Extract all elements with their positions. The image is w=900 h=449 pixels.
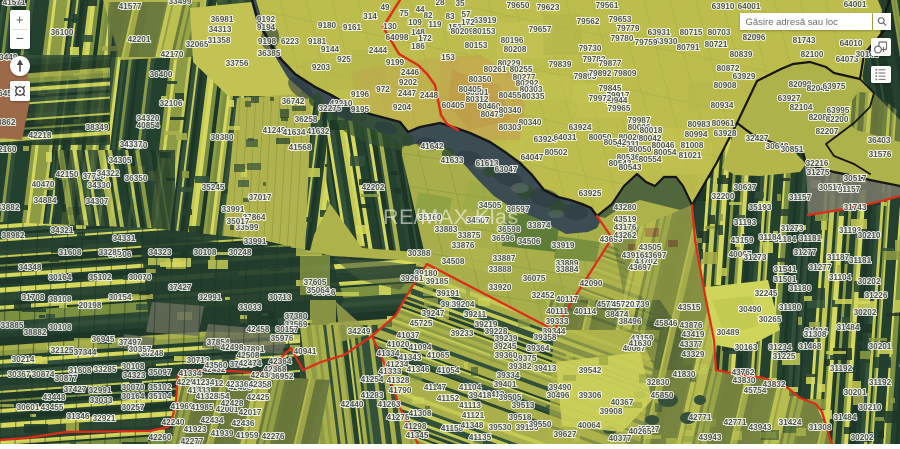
svg-text:30201: 30201	[844, 388, 867, 397]
svg-text:64001: 64001	[738, 2, 761, 11]
svg-text:30164: 30164	[49, 273, 72, 282]
svg-text:153: 153	[441, 53, 455, 62]
svg-text:33919: 33919	[552, 241, 575, 250]
svg-text:80908: 80908	[714, 81, 737, 90]
svg-text:80502: 80502	[545, 148, 568, 157]
svg-text:43455: 43455	[41, 403, 64, 412]
svg-text:43448: 43448	[43, 393, 66, 402]
svg-text:40111: 40111	[546, 307, 568, 316]
svg-text:36981: 36981	[211, 15, 234, 24]
svg-text:34884: 34884	[34, 196, 57, 205]
svg-text:42458: 42458	[247, 325, 270, 334]
svg-text:79650: 79650	[507, 1, 530, 10]
svg-text:80542: 80542	[604, 138, 627, 147]
svg-text:32830: 32830	[647, 378, 670, 387]
svg-text:38380: 38380	[211, 133, 234, 142]
svg-text:36945: 36945	[92, 335, 115, 344]
svg-text:41135: 41135	[469, 433, 492, 442]
svg-text:83: 83	[445, 12, 455, 21]
svg-text:42017: 42017	[239, 408, 262, 417]
svg-text:RE/MAX Klas: RE/MAX Klas	[383, 205, 519, 229]
svg-text:42425: 42425	[247, 393, 270, 402]
svg-text:30201: 30201	[869, 342, 892, 351]
svg-text:41152: 41152	[437, 394, 460, 403]
svg-text:43377: 43377	[680, 340, 703, 349]
svg-text:36403: 36403	[868, 136, 891, 145]
svg-text:41263: 41263	[378, 400, 401, 409]
svg-text:9144: 9144	[321, 45, 340, 54]
svg-text:82207: 82207	[816, 127, 839, 136]
svg-text:31468: 31468	[799, 342, 822, 351]
svg-text:39185: 39185	[426, 277, 449, 286]
svg-text:42474: 42474	[239, 359, 262, 368]
svg-text:9203: 9203	[312, 63, 331, 72]
svg-text:37017: 37017	[249, 193, 272, 202]
svg-text:9204: 9204	[393, 103, 412, 112]
svg-text:30108: 30108	[49, 323, 72, 332]
svg-text:41283: 41283	[361, 391, 384, 400]
svg-text:60405: 60405	[442, 101, 465, 110]
svg-text:9180: 9180	[318, 21, 337, 30]
svg-text:80261: 80261	[484, 65, 507, 74]
svg-text:39530: 39530	[489, 423, 512, 432]
svg-text:43943: 43943	[749, 423, 772, 432]
svg-text:34313: 34313	[209, 25, 232, 34]
svg-text:30265: 30265	[759, 315, 782, 324]
svg-text:35102: 35102	[89, 273, 112, 282]
svg-text:42440: 42440	[341, 400, 364, 409]
svg-text:80839: 80839	[730, 50, 753, 59]
svg-text:39513: 39513	[512, 401, 535, 410]
svg-text:30517: 30517	[844, 174, 867, 183]
svg-text:79839: 79839	[549, 60, 572, 69]
svg-text:41308: 41308	[409, 409, 432, 418]
svg-text:41278: 41278	[387, 413, 410, 422]
svg-text:63975: 63975	[823, 82, 846, 91]
svg-text:30257: 30257	[122, 403, 145, 412]
svg-text:40265: 40265	[629, 427, 652, 436]
svg-text:63910: 63910	[712, 2, 735, 11]
svg-text:31180: 31180	[779, 303, 802, 312]
svg-text:81743: 81743	[793, 36, 816, 45]
svg-text:79965: 79965	[608, 104, 631, 113]
svg-text:38108: 38108	[49, 295, 72, 304]
svg-text:2446: 2446	[401, 68, 420, 77]
svg-text:43159: 43159	[731, 236, 754, 245]
svg-text:39333: 39333	[546, 317, 569, 326]
svg-text:39211: 39211	[464, 310, 487, 319]
svg-text:31743: 31743	[844, 203, 867, 212]
svg-text:33991: 33991	[222, 205, 245, 214]
svg-text:35102: 35102	[149, 383, 172, 392]
svg-text:41568: 41568	[289, 143, 312, 152]
svg-text:30163: 30163	[735, 343, 758, 352]
svg-text:31358: 31358	[208, 36, 231, 45]
svg-text:20198: 20198	[79, 301, 102, 310]
svg-text:31484: 31484	[837, 323, 860, 332]
svg-text:30154: 30154	[109, 293, 132, 302]
svg-text:63047: 63047	[495, 165, 518, 174]
svg-text:42436: 42436	[232, 419, 255, 428]
svg-text:32200: 32200	[712, 192, 735, 201]
svg-text:80554: 80554	[639, 155, 662, 164]
svg-text:33920: 33920	[489, 283, 512, 292]
svg-text:31187: 31187	[827, 253, 850, 262]
svg-text:31608: 31608	[59, 248, 82, 257]
svg-text:39204: 39204	[452, 300, 475, 309]
svg-text:80405: 80405	[459, 85, 482, 94]
svg-text:63927: 63927	[778, 94, 801, 103]
svg-text:30108: 30108	[122, 362, 145, 371]
svg-text:79779: 79779	[617, 24, 640, 33]
svg-text:31273: 31273	[744, 253, 767, 262]
svg-text:35976: 35976	[271, 334, 294, 343]
svg-text:63925: 63925	[579, 189, 602, 198]
svg-text:31277: 31277	[809, 263, 832, 272]
svg-text:41939: 41939	[211, 429, 234, 438]
svg-text:80196: 80196	[501, 36, 524, 45]
svg-text:39413: 39413	[534, 364, 557, 373]
svg-text:41020: 41020	[387, 340, 410, 349]
svg-text:40941: 40941	[294, 347, 317, 356]
svg-text:186: 186	[411, 42, 425, 51]
svg-text:30496: 30496	[547, 391, 570, 400]
svg-text:30248: 30248	[229, 248, 252, 257]
svg-text:80208: 80208	[504, 45, 527, 54]
svg-text:79877: 79877	[599, 59, 622, 68]
svg-text:36952: 36952	[271, 372, 294, 381]
svg-text:43560: 43560	[205, 361, 228, 370]
svg-text:30070: 30070	[122, 383, 145, 392]
svg-text:40367: 40367	[611, 398, 634, 407]
svg-text:43419: 43419	[682, 330, 705, 339]
svg-text:33499: 33499	[169, 0, 192, 6]
svg-text:41633: 41633	[441, 156, 464, 165]
svg-text:41334: 41334	[377, 349, 400, 358]
svg-text:64010: 64010	[840, 39, 863, 48]
svg-text:6223: 6223	[281, 37, 300, 46]
svg-text:82104: 82104	[790, 103, 813, 112]
svg-text:30489: 30489	[717, 328, 740, 337]
svg-text:42771: 42771	[724, 418, 747, 427]
svg-text:44: 44	[415, 5, 425, 14]
svg-text:31708: 31708	[22, 293, 45, 302]
svg-text:30877: 30877	[55, 374, 78, 383]
svg-text:33033: 33033	[90, 396, 113, 405]
svg-text:79623: 79623	[537, 3, 560, 12]
svg-text:109: 109	[408, 18, 422, 27]
svg-text:30367: 30367	[8, 370, 31, 379]
svg-text:79780: 79780	[611, 34, 634, 43]
svg-text:79809: 79809	[614, 69, 637, 78]
svg-text:34249: 34249	[348, 327, 371, 336]
svg-text:41121: 41121	[462, 411, 485, 420]
svg-text:30637: 30637	[734, 183, 757, 192]
svg-text:41348: 41348	[461, 421, 484, 430]
svg-text:28: 28	[435, 0, 445, 7]
svg-text:31484: 31484	[834, 413, 857, 422]
svg-text:31225: 31225	[773, 352, 796, 361]
svg-text:31181: 31181	[799, 234, 822, 243]
svg-text:79892: 79892	[589, 69, 612, 78]
svg-text:43280: 43280	[614, 203, 637, 212]
svg-text:32216: 32216	[806, 159, 829, 168]
svg-text:36742: 36742	[282, 97, 305, 106]
svg-text:31226: 31226	[865, 291, 888, 300]
svg-text:34323: 34323	[123, 371, 146, 380]
svg-text:39233: 39233	[451, 329, 474, 338]
svg-text:32991: 32991	[199, 293, 222, 302]
svg-text:42170: 42170	[161, 50, 184, 59]
svg-text:80934: 80934	[711, 101, 734, 110]
svg-text:41985: 41985	[191, 403, 214, 412]
svg-text:34323: 34323	[149, 248, 172, 257]
svg-text:41632: 41632	[307, 127, 330, 136]
svg-text:42428: 42428	[221, 399, 244, 408]
svg-text:43876: 43876	[680, 321, 703, 330]
svg-text:41923: 41923	[184, 425, 207, 434]
svg-text:42218: 42218	[29, 131, 52, 140]
svg-text:30108: 30108	[194, 248, 217, 257]
svg-text:37344: 37344	[74, 348, 97, 357]
svg-text:80153: 80153	[473, 27, 496, 36]
svg-text:35245: 35245	[202, 183, 225, 192]
svg-text:33882: 33882	[0, 203, 20, 212]
svg-text:30202: 30202	[858, 277, 881, 286]
svg-text:39542: 39542	[579, 366, 602, 375]
svg-text:42160: 42160	[0, 145, 17, 154]
svg-text:80340: 80340	[519, 118, 542, 127]
svg-text:42434: 42434	[201, 416, 224, 425]
svg-text:64047: 64047	[521, 153, 544, 162]
svg-text:81008: 81008	[681, 141, 704, 150]
svg-text:34508: 34508	[442, 257, 465, 266]
svg-text:39358: 39358	[534, 333, 557, 342]
svg-text:30851: 30851	[781, 145, 804, 154]
svg-text:2444: 2444	[369, 46, 388, 55]
svg-text:43515: 43515	[678, 303, 701, 312]
svg-text:30210: 30210	[858, 231, 881, 240]
svg-text:9196: 9196	[351, 90, 370, 99]
svg-text:34337: 34337	[120, 140, 143, 149]
svg-text:41328: 41328	[196, 392, 219, 401]
svg-text:31308: 31308	[809, 423, 832, 432]
svg-text:34331: 34331	[113, 234, 136, 243]
svg-text:30713: 30713	[269, 293, 292, 302]
svg-text:41959: 41959	[236, 431, 259, 440]
svg-text:30210: 30210	[859, 403, 882, 412]
svg-text:42150: 42150	[56, 170, 79, 179]
svg-text:35097: 35097	[149, 368, 172, 377]
svg-text:925: 925	[337, 55, 351, 64]
svg-text:31277: 31277	[794, 248, 817, 257]
svg-text:80340: 80340	[499, 106, 522, 115]
svg-text:80994: 80994	[685, 130, 708, 139]
svg-text:34307: 34307	[86, 197, 109, 206]
svg-text:30202: 30202	[851, 433, 874, 442]
svg-text:42771: 42771	[689, 413, 712, 422]
svg-text:30357: 30357	[129, 345, 152, 354]
svg-text:33888: 33888	[489, 265, 512, 274]
svg-text:34305: 34305	[109, 156, 132, 165]
svg-text:63931: 63931	[648, 28, 671, 37]
svg-text:33756: 33756	[226, 59, 249, 68]
svg-text:33991: 33991	[244, 237, 267, 246]
svg-text:30214: 30214	[12, 355, 35, 364]
svg-text:63919: 63919	[474, 16, 497, 25]
svg-text:40114: 40114	[574, 307, 597, 316]
svg-text:36075: 36075	[523, 274, 546, 283]
svg-text:39418: 39418	[469, 391, 492, 400]
svg-text:38496: 38496	[619, 317, 642, 326]
svg-text:39245: 39245	[494, 342, 517, 351]
svg-text:38982: 38982	[2, 231, 25, 240]
svg-text:41634: 41634	[283, 128, 306, 137]
svg-text:30388: 30388	[408, 249, 431, 258]
svg-text:82100: 82100	[801, 50, 824, 59]
svg-text:43830: 43830	[733, 376, 756, 385]
svg-text:42090: 42090	[580, 279, 603, 288]
svg-text:31234: 31234	[769, 343, 792, 352]
svg-text:9161: 9161	[343, 23, 362, 32]
svg-text:31424: 31424	[779, 418, 802, 427]
svg-text:33285: 33285	[99, 248, 122, 257]
svg-text:33875: 33875	[458, 231, 481, 240]
svg-text:40470: 40470	[32, 180, 55, 189]
svg-text:79562: 79562	[577, 17, 600, 26]
svg-text:9194: 9194	[257, 23, 276, 32]
svg-text:80961: 80961	[712, 119, 735, 128]
svg-text:31501: 31501	[774, 275, 797, 284]
svg-text:34320: 34320	[137, 114, 160, 123]
svg-text:31184: 31184	[759, 233, 782, 242]
svg-text:9195: 9195	[351, 105, 370, 114]
svg-text:40064: 40064	[578, 421, 601, 430]
svg-text:41790: 41790	[389, 386, 412, 395]
svg-text:39247: 39247	[422, 309, 445, 318]
svg-text:35064: 35064	[307, 286, 330, 295]
svg-text:43262: 43262	[614, 231, 637, 240]
svg-text:39364: 39364	[527, 344, 550, 353]
svg-text:80209: 80209	[451, 27, 474, 36]
svg-text:42260: 42260	[149, 433, 172, 442]
svg-text:41065: 41065	[427, 351, 450, 360]
svg-text:80721: 80721	[705, 40, 728, 49]
svg-text:45725: 45725	[410, 319, 433, 328]
svg-text:41328: 41328	[387, 376, 410, 385]
svg-text:38349: 38349	[86, 123, 109, 132]
svg-text:43832: 43832	[763, 380, 786, 389]
svg-text:49: 49	[380, 3, 390, 12]
svg-text:41577: 41577	[119, 2, 142, 11]
svg-text:32106: 32106	[160, 99, 183, 108]
svg-text:38862: 38862	[0, 118, 16, 127]
svg-text:43329: 43329	[682, 350, 705, 359]
svg-text:31541: 31541	[774, 265, 797, 274]
svg-text:41571: 41571	[3, 0, 26, 7]
svg-text:31192: 31192	[830, 364, 853, 373]
svg-text:43943: 43943	[699, 433, 722, 442]
svg-text:42202: 42202	[362, 183, 385, 192]
svg-text:34322: 34322	[97, 169, 120, 178]
svg-text:35104: 35104	[149, 392, 172, 401]
svg-text:33033: 33033	[239, 303, 262, 312]
svg-text:41642: 41642	[421, 142, 444, 151]
svg-text:41054: 41054	[437, 366, 460, 375]
svg-text:31346: 31346	[67, 412, 90, 421]
svg-text:63930: 63930	[655, 37, 678, 46]
svg-text:80791: 80791	[677, 43, 700, 52]
svg-text:39401: 39401	[494, 380, 517, 389]
svg-text:2448: 2448	[420, 91, 439, 100]
svg-text:36596: 36596	[492, 234, 515, 243]
svg-text:79759: 79759	[635, 38, 658, 47]
svg-text:41037: 41037	[397, 331, 420, 340]
svg-text:43697: 43697	[629, 263, 652, 272]
svg-text:80350: 80350	[469, 75, 492, 84]
svg-text:31192: 31192	[869, 378, 892, 387]
svg-text:80715: 80715	[680, 28, 703, 37]
svg-text:80703: 80703	[708, 28, 731, 37]
svg-text:41345: 41345	[406, 431, 429, 440]
svg-text:39261: 39261	[401, 274, 424, 283]
svg-text:9202: 9202	[399, 78, 418, 87]
svg-text:30517: 30517	[819, 183, 842, 192]
svg-text:33874: 33874	[528, 221, 551, 230]
svg-text:37427: 37427	[169, 283, 192, 292]
svg-text:42277: 42277	[181, 437, 204, 444]
svg-text:80153: 80153	[465, 41, 488, 50]
svg-text:79972: 79972	[589, 94, 612, 103]
svg-text:31273: 31273	[781, 224, 804, 233]
svg-text:36258: 36258	[295, 115, 318, 124]
svg-text:82096: 82096	[743, 33, 766, 42]
svg-text:30874: 30874	[32, 370, 55, 379]
svg-text:30164: 30164	[122, 392, 145, 401]
svg-text:80983: 80983	[688, 120, 711, 129]
svg-text:81021: 81021	[679, 151, 702, 160]
svg-text:35017: 35017	[227, 217, 250, 226]
svg-text:41298: 41298	[404, 422, 427, 431]
svg-text:39550: 39550	[529, 420, 552, 429]
svg-text:32065: 32065	[186, 40, 209, 49]
svg-text:31576: 31576	[869, 150, 892, 159]
svg-text:41147: 41147	[424, 383, 447, 392]
svg-text:41630: 41630	[629, 339, 652, 348]
svg-text:33884: 33884	[556, 265, 579, 274]
svg-text:30601: 30601	[17, 403, 40, 412]
svg-text:80543: 80543	[619, 163, 642, 172]
svg-text:64001: 64001	[844, 0, 867, 9]
svg-text:45850: 45850	[651, 391, 674, 400]
svg-text:64098: 64098	[386, 33, 409, 42]
svg-text:39908: 39908	[600, 407, 623, 416]
svg-text:33285: 33285	[94, 365, 117, 374]
svg-text:119: 119	[428, 20, 442, 29]
svg-text:36400: 36400	[150, 70, 173, 79]
svg-text:41334: 41334	[179, 369, 202, 378]
svg-text:42336: 42336	[226, 380, 249, 389]
svg-text:39627: 39627	[554, 430, 577, 439]
svg-text:32452: 32452	[532, 291, 555, 300]
svg-text:130: 130	[383, 22, 397, 31]
svg-text:82200: 82200	[826, 115, 849, 124]
svg-text:30202: 30202	[854, 308, 877, 317]
svg-text:32125: 32125	[51, 346, 74, 355]
svg-text:42201: 42201	[128, 35, 151, 44]
svg-text:45720: 45720	[612, 300, 635, 309]
svg-text:41346: 41346	[407, 365, 430, 374]
